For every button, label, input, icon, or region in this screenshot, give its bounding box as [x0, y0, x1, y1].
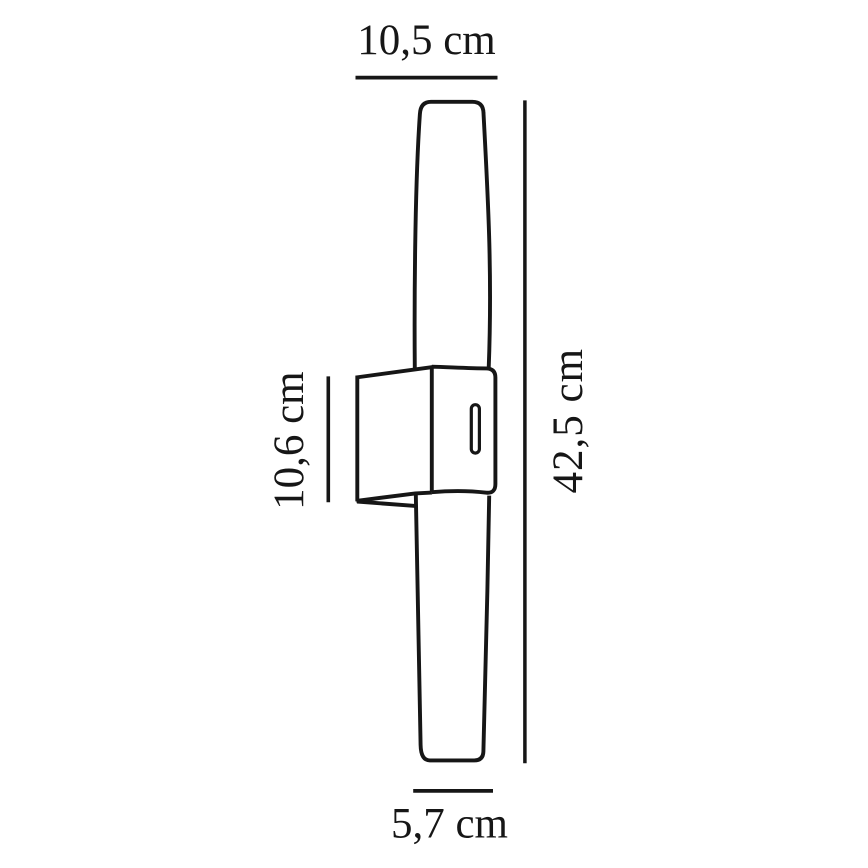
- svg-text:5,7 cm: 5,7 cm: [391, 800, 508, 847]
- svg-text:42,5 cm: 42,5 cm: [545, 348, 592, 494]
- svg-text:10,5 cm: 10,5 cm: [357, 17, 496, 64]
- svg-text:10,6 cm: 10,6 cm: [266, 371, 313, 510]
